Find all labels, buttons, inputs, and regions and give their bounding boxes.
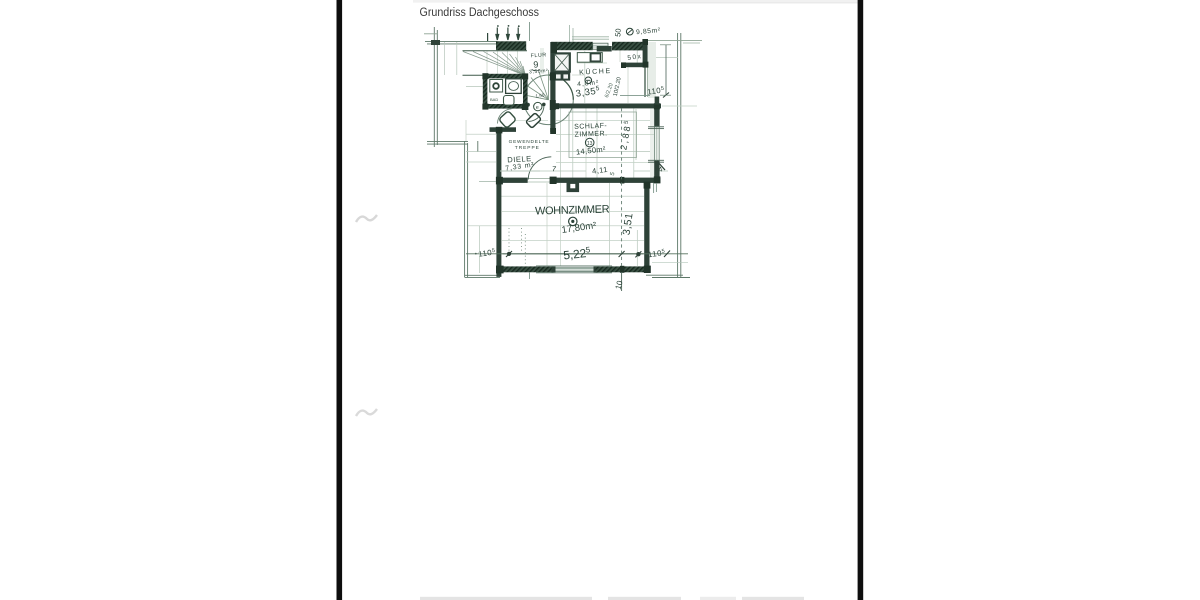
svg-text:50x: 50x [627, 53, 642, 62]
svg-text:1105: 1105 [647, 248, 665, 259]
svg-text:5: 5 [610, 171, 617, 177]
svg-text:2,885: 2,885 [618, 119, 633, 150]
svg-text:1,50: 1,50 [535, 93, 545, 99]
svg-text:BAD: BAD [490, 97, 498, 102]
svg-text:GEWENDELTE: GEWENDELTE [509, 139, 549, 145]
svg-text:KÜCHE: KÜCHE [579, 67, 611, 77]
svg-text:ZIMMER.: ZIMMER. [574, 130, 607, 138]
svg-text:5,225: 5,225 [563, 245, 592, 262]
svg-text:17,80m²: 17,80m² [561, 220, 597, 236]
svg-text:1105: 1105 [478, 247, 496, 258]
svg-text:FLUR: FLUR [531, 52, 547, 59]
svg-text:10/2.20: 10/2.20 [613, 77, 623, 97]
svg-text:Grundriss Dachgeschoss: Grundriss Dachgeschoss [420, 5, 540, 19]
svg-text:9,85m²: 9,85m² [636, 27, 661, 36]
svg-text:13: 13 [587, 141, 593, 147]
svg-text:TREPPE: TREPPE [515, 145, 539, 151]
svg-text:10: 10 [614, 279, 625, 290]
svg-text:50: 50 [613, 28, 623, 37]
svg-text:7: 7 [551, 164, 556, 173]
svg-text:SCHLAF-: SCHLAF- [574, 123, 607, 131]
svg-text:WOHNZIMMER: WOHNZIMMER [535, 204, 610, 218]
svg-text:3,51: 3,51 [621, 212, 636, 236]
svg-text:4,11: 4,11 [592, 165, 608, 176]
svg-text:3,50m²: 3,50m² [529, 68, 548, 75]
svg-text:e: e [536, 105, 539, 111]
